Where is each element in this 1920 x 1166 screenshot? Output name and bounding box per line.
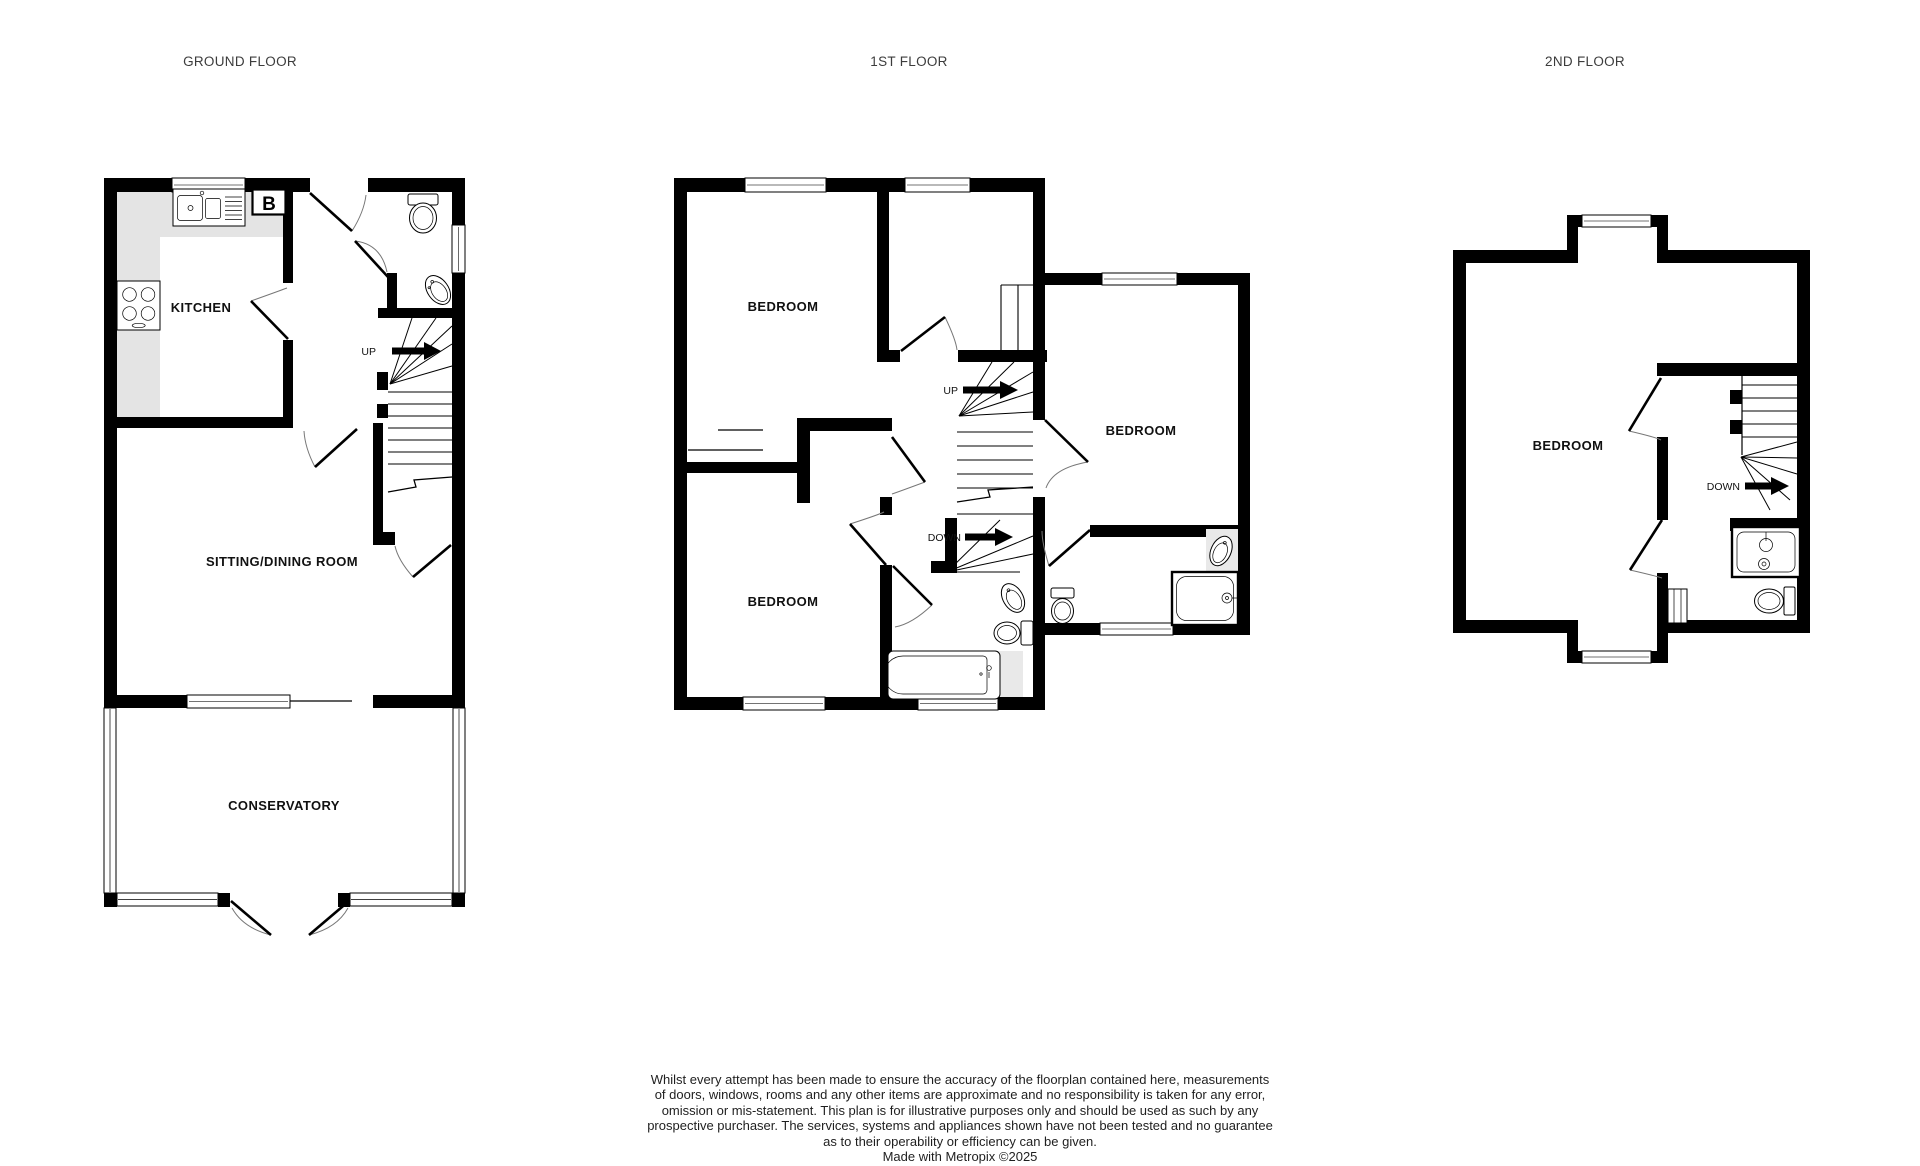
disclaimer-line: prospective purchaser. The services, sys… [0,1118,1920,1133]
disclaimer: Whilst every attempt has been made to en… [0,1072,1920,1164]
bedroom-side-label: BEDROOM [1106,423,1177,438]
toilet-icon [1755,587,1796,615]
kitchen-sink-icon [173,189,245,226]
floorplan-page: GROUND FLOOR 1ST FLOOR 2ND FLOOR [0,0,1920,1166]
sink-icon [1732,527,1800,577]
ground-floor-title: GROUND FLOOR [183,54,297,69]
understair-door-icon [395,545,451,577]
sitting-dining-label: SITTING/DINING ROOM [206,554,358,569]
wc-door-icon [355,241,388,277]
bedroom-back-label: BEDROOM [748,594,819,609]
stairs-down-label: DOWN [928,532,961,544]
window-icon [743,697,825,710]
window-icon [1102,273,1177,285]
bedroom-door-icon [1629,378,1661,440]
front-door-icon [310,193,366,231]
cupboard-door-icon [892,437,925,494]
second-floor-plan: BEDROOM DOWN [1445,205,1835,675]
window-icon [1582,651,1651,663]
boiler-letter: B [262,194,276,215]
disclaimer-line: as to their operability or efficiency ca… [0,1134,1920,1149]
stairs-up-label: UP [361,346,376,358]
bedroom-label: BEDROOM [1533,438,1604,453]
first-floor-plan: BEDROOM BEDROOM BEDROOM UP DOWN [660,170,1265,730]
staircase-icon [947,285,1033,572]
first-floor-title: 1ST FLOOR [870,54,947,69]
window-icon [452,225,465,273]
disclaimer-line: Whilst every attempt has been made to en… [0,1072,1920,1087]
bath-icon [884,651,1000,699]
bathroom-door-icon [1630,520,1662,578]
staircase-down-icon [1741,376,1797,510]
second-bathroom-fixtures [1663,527,1800,623]
bedroom-side-door-icon [1045,420,1088,488]
disclaimer-line: omission or mis-statement. This plan is … [0,1103,1920,1118]
bedroom-front-door-icon [901,317,957,351]
stairs-down-label: DOWN [1707,481,1740,493]
window-icon [187,695,290,708]
ground-floor-plan: B KITCHEN SITTING/DINING ROOM CONSERVATO… [85,140,485,970]
hob-icon [117,281,160,330]
staircase-up-icon [388,318,452,492]
bedroom-front-label: BEDROOM [748,299,819,314]
french-doors-icon [231,901,349,935]
bathroom-fixtures [884,580,1033,699]
kitchen-label: KITCHEN [171,300,232,315]
window-icon [1100,623,1173,635]
second-floor-title: 2ND FLOOR [1545,54,1625,69]
bedroom-back-door-icon [850,512,886,565]
ensuite-door-icon [1042,530,1090,566]
basin-icon [420,271,456,309]
ensuite-fixtures [1051,529,1238,625]
wardrobe-lines [688,430,763,450]
window-icon [905,178,970,192]
toilet-icon [994,621,1033,645]
credit-line: Made with Metropix ©2025 [0,1149,1920,1164]
toilet-icon [408,194,438,233]
boiler-icon: B [253,190,286,216]
stairs-up-label: UP [943,385,958,397]
window-icon [1582,215,1651,227]
shower-icon [1172,572,1238,625]
toilet-icon [1051,588,1074,624]
kitchen-door-icon [251,288,288,339]
window-icon [745,178,826,192]
disclaimer-line: of doors, windows, rooms and any other i… [0,1087,1920,1102]
bathroom-door-icon [893,566,932,627]
sitting-room-door-icon [304,429,357,467]
ground-windows [172,178,465,708]
basin-icon [997,580,1030,617]
conservatory-label: CONSERVATORY [228,798,340,813]
